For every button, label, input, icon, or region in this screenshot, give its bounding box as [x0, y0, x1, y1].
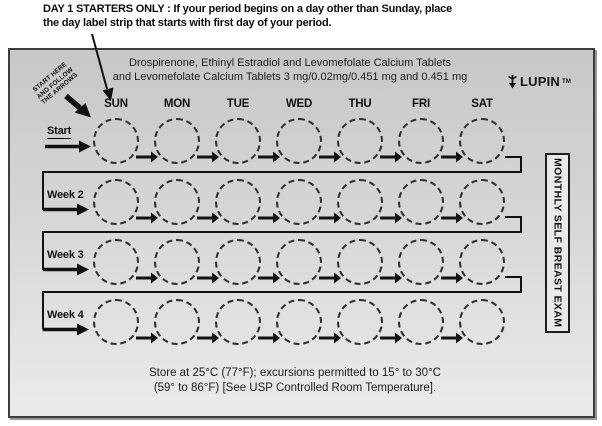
right-arrow-icon [43, 203, 89, 216]
pill-pack-diagram: DAY 1 STARTERS ONLY : If your period beg… [0, 0, 602, 426]
row-arrow-start [45, 140, 91, 153]
pill-day-circle [215, 299, 261, 345]
row-arrow-week-2 [43, 203, 89, 216]
next-day-arrow [197, 332, 219, 344]
right-arrow-icon [197, 212, 219, 224]
right-arrow-icon [197, 151, 219, 163]
pill-day-circle [276, 118, 322, 164]
lupin-brand-name: LUPIN [520, 74, 560, 89]
row-label-week-4: Week 4 [47, 309, 84, 321]
right-arrow-icon [43, 263, 89, 276]
lupin-trademark: TM [562, 79, 571, 85]
next-day-arrow [319, 272, 341, 284]
day-header-sat: SAT [454, 98, 510, 110]
next-day-arrow [197, 151, 219, 163]
day-header-thu: THU [332, 98, 388, 110]
pill-day-circle [337, 299, 383, 345]
right-arrow-icon [258, 332, 280, 344]
pill-day-circle [154, 299, 200, 345]
right-arrow-icon [136, 151, 158, 163]
storage-line2: (59° to 86°F) [See USP Controlled Room T… [60, 381, 530, 396]
day1-starters-note: DAY 1 STARTERS ONLY : If your period beg… [43, 3, 452, 30]
next-day-arrow [136, 332, 158, 344]
day-header-fri: FRI [393, 98, 449, 110]
next-day-arrow [258, 332, 280, 344]
next-day-arrow [258, 272, 280, 284]
row-arrow-week-4 [43, 323, 89, 336]
next-day-arrow [441, 212, 463, 224]
pill-day-circle [93, 299, 139, 345]
day-header-mon: MON [149, 98, 205, 110]
right-arrow-icon [319, 212, 341, 224]
pill-day-circle [459, 239, 505, 285]
pill-day-circle [459, 179, 505, 225]
right-arrow-icon [441, 332, 463, 344]
row-label-week-3: Week 3 [47, 249, 84, 261]
storage-line1: Store at 25°C (77°F); excursions permitt… [60, 366, 530, 381]
pill-day-circle [398, 179, 444, 225]
right-arrow-icon [197, 332, 219, 344]
lupin-flower-icon [507, 74, 518, 89]
pill-day-circle [276, 299, 322, 345]
right-arrow-icon [136, 272, 158, 284]
right-arrow-icon [258, 151, 280, 163]
day1-starters-note-line1: DAY 1 STARTERS ONLY : If your period beg… [43, 3, 452, 17]
pill-day-circle [93, 179, 139, 225]
pill-day-circle [337, 118, 383, 164]
next-day-arrow [197, 272, 219, 284]
next-day-arrow [441, 151, 463, 163]
product-title-line2: and Levomefolate Calcium Tablets 3 mg/0.… [55, 71, 525, 85]
right-arrow-icon [258, 212, 280, 224]
pill-day-circle [398, 118, 444, 164]
pill-day-circle [276, 179, 322, 225]
right-arrow-icon [441, 272, 463, 284]
next-day-arrow [136, 151, 158, 163]
right-arrow-icon [380, 212, 402, 224]
pill-day-circle [154, 118, 200, 164]
row-label-start: Start [47, 125, 71, 139]
right-arrow-icon [136, 212, 158, 224]
right-arrow-icon [43, 323, 89, 336]
next-day-arrow [319, 332, 341, 344]
pill-day-circle [93, 239, 139, 285]
breast-exam-reminder-label: MONTHLY SELF BREAST EXAM [552, 158, 564, 327]
day-header-sun: SUN [88, 98, 144, 110]
next-day-arrow [197, 212, 219, 224]
product-title-line1: Drospirenone, Ethinyl Estradiol and Levo… [55, 57, 525, 71]
next-day-arrow [136, 272, 158, 284]
day-header-wed: WED [271, 98, 327, 110]
next-day-arrow [258, 151, 280, 163]
pill-day-circle [276, 239, 322, 285]
right-arrow-icon [258, 272, 280, 284]
right-arrow-icon [197, 272, 219, 284]
right-arrow-icon [319, 272, 341, 284]
pill-day-circle [215, 239, 261, 285]
pill-day-circle [337, 239, 383, 285]
right-arrow-icon [319, 151, 341, 163]
pill-day-circle [398, 239, 444, 285]
right-arrow-icon [441, 151, 463, 163]
pill-day-circle [337, 179, 383, 225]
right-arrow-icon [380, 151, 402, 163]
next-day-arrow [380, 332, 402, 344]
row-arrow-week-3 [43, 263, 89, 276]
pill-day-circle [154, 179, 200, 225]
right-arrow-icon [380, 272, 402, 284]
day1-starters-note-line2: the day label strip that starts with fir… [43, 17, 452, 31]
right-arrow-icon [380, 332, 402, 344]
pill-day-circle [459, 299, 505, 345]
storage-instructions: Store at 25°C (77°F); excursions permitt… [60, 366, 530, 395]
next-day-arrow [380, 272, 402, 284]
next-day-arrow [319, 151, 341, 163]
pill-day-circle [154, 239, 200, 285]
next-day-arrow [380, 151, 402, 163]
day-header-tue: TUE [210, 98, 266, 110]
next-day-arrow [441, 272, 463, 284]
pill-day-circle [215, 179, 261, 225]
pill-day-circle [459, 118, 505, 164]
next-day-arrow [258, 212, 280, 224]
right-arrow-icon [441, 212, 463, 224]
right-arrow-icon [45, 140, 91, 153]
row-label-week-2: Week 2 [47, 189, 84, 201]
next-day-arrow [136, 212, 158, 224]
right-arrow-icon [319, 332, 341, 344]
pill-day-circle [398, 299, 444, 345]
next-day-arrow [380, 212, 402, 224]
next-day-arrow [441, 332, 463, 344]
next-day-arrow [319, 212, 341, 224]
pill-day-circle [215, 118, 261, 164]
pill-day-circle [93, 118, 139, 164]
breast-exam-reminder: MONTHLY SELF BREAST EXAM [545, 153, 570, 333]
right-arrow-icon [136, 332, 158, 344]
product-title: Drospirenone, Ethinyl Estradiol and Levo… [55, 57, 525, 84]
lupin-logo: LUPINTM [507, 74, 571, 89]
